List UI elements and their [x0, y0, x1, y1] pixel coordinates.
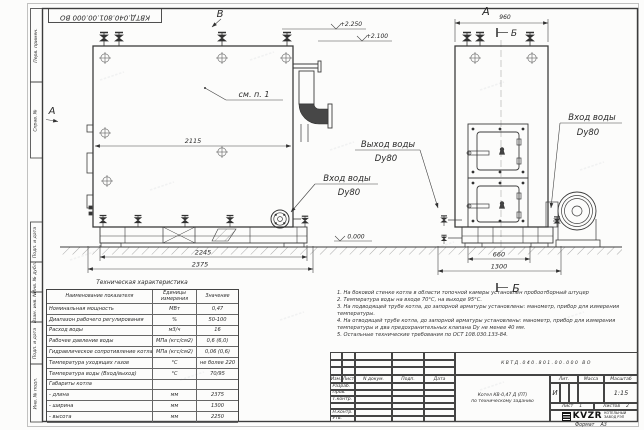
tb-row-utv: Утв. — [330, 416, 355, 423]
dim-2245-label: 2245 — [195, 249, 212, 257]
tb-company-cell: KVZR КОТЕЛЬНЫЙ ЗАВОД РЭП — [550, 410, 638, 422]
dim-2115-label: 2115 — [185, 137, 202, 145]
tb-designation: КВТД.040.801.00.000 ВО — [455, 352, 638, 375]
spec-table: Наименование показателя Единицы измерени… — [46, 289, 239, 422]
format-label: Формат — [575, 423, 594, 428]
inlet-side-label-line1: Вход воды — [568, 113, 616, 123]
dim-2375-label: 2375 — [192, 261, 209, 269]
technical-notes: 1. На боковой стенке котла в области топ… — [337, 290, 637, 339]
top-stamp-text: КВТД.040.801.00.000 ВО — [60, 14, 150, 22]
spec-row-unit — [153, 380, 197, 391]
spec-row-value: 0,47 — [197, 304, 238, 315]
format-value: А3 — [600, 423, 606, 428]
margin-box-perv-primen: Перв. примен. — [30, 8, 42, 82]
spec-row-value: 50-100 — [197, 315, 238, 326]
spec-row-unit: МПа (кгс/см2) — [153, 336, 197, 347]
top-valves-front — [100, 33, 291, 47]
spec-row-unit: °С — [153, 358, 197, 369]
note-3: 3. На подводящей трубе котла, до запорно… — [337, 304, 637, 317]
spec-row-value — [197, 380, 238, 391]
outlet-label-line2: Dy80 — [375, 154, 397, 164]
title-block: Изм. Лист N докум. Подп. Дата Разраб. Пр… — [330, 352, 638, 422]
spec-row-value: 70/95 — [197, 369, 238, 380]
spec-row-name: Гидравлическое сопротивление котла — [47, 347, 153, 358]
side-wall-fittings — [87, 125, 93, 215]
tb-col-ndokum: N докум. — [355, 375, 392, 383]
margin-box-inv-podl: Инв. № подл. — [30, 364, 42, 422]
spec-row-value: 1300 — [197, 401, 238, 412]
gas-outlet-elbow — [293, 61, 332, 142]
callout-see-p1: см. п. 1 — [239, 90, 270, 99]
spec-row-name: Номинальная мощность — [47, 304, 153, 315]
section-b-top-label: Б — [511, 29, 517, 39]
kvzr-logo-icon — [562, 412, 571, 421]
spec-row-name: Диапазон рабочего регулирования — [47, 315, 153, 326]
dim-960-label: 960 — [499, 14, 511, 21]
note-1: 1. На боковой стенке котла в области топ… — [337, 290, 637, 297]
top-valves-side — [463, 33, 534, 47]
spec-header-value: Значение — [197, 290, 238, 304]
margin-box-sprav-n: Справ. № — [30, 82, 42, 158]
spec-row-unit: м3/ч — [153, 326, 197, 337]
spec-row-unit: мм — [153, 412, 197, 423]
margin-box-podp-data-1: Подп. и дата — [30, 222, 42, 262]
tb-mass-value — [578, 383, 604, 403]
skid-base-side — [462, 227, 553, 247]
tb-scale-value: 1:15 — [604, 383, 638, 403]
spec-row-name: - высота — [47, 412, 153, 423]
tb-col-data: Дата — [424, 375, 455, 383]
spec-header-name: Наименование показателя — [47, 290, 153, 304]
spec-header-unit: Единицы измерения — [153, 290, 197, 304]
margin-box-inv-dubl: Инв. № дубл. — [30, 262, 42, 292]
spec-row-name: - ширина — [47, 401, 153, 412]
spec-row-unit: мм — [153, 401, 197, 412]
view-label-b: В — [217, 9, 224, 20]
water-inlet-flange — [271, 210, 289, 228]
spec-row-name: Температура уходящих газов — [47, 358, 153, 369]
margin-box-vzam-inv: Взам. инв. № — [30, 292, 42, 322]
blower-fan — [546, 192, 600, 247]
spec-row-unit: МВт — [153, 304, 197, 315]
format-note: Формат А3 — [575, 423, 607, 428]
boiler-body-side — [455, 46, 548, 227]
spec-row-name: Температура воды (Вход/выход) — [47, 369, 153, 380]
drawing-sheet: КВТД.040.801.00.000 ВО — [0, 0, 644, 430]
bottom-valves-front — [100, 216, 309, 227]
note-5: 5. Остальные технические требования по О… — [337, 332, 637, 339]
spec-row-unit: % — [153, 315, 197, 326]
inlet-side-label-line2: Dy80 — [577, 128, 599, 138]
tb-doc-name-line2: по техническому заданию — [471, 399, 534, 405]
side-view-label-a: А — [481, 5, 490, 18]
tb-col-izm: Изм. — [330, 375, 342, 383]
spec-row-name: - длина — [47, 390, 153, 401]
spec-row-unit: мм — [153, 390, 197, 401]
side-view — [441, 33, 600, 253]
tb-sheets-cell: Листов2 — [594, 403, 638, 410]
spec-row-name: Расход воды — [47, 326, 153, 337]
dim-1300-label: 1300 — [491, 263, 508, 271]
spec-row-value: не более 220 — [197, 358, 238, 369]
outlet-label-line1: Выход воды — [361, 140, 415, 150]
note-4: 4. На отводящей трубе котла, до запорной… — [337, 318, 637, 331]
ground-line — [60, 247, 622, 255]
tb-lit-value: И — [550, 383, 560, 403]
elev-2250-label: +2.250 — [340, 21, 362, 28]
note-2: 2. Температура воды на входе 70°С, на вы… — [337, 297, 637, 304]
spec-row-name: Рабочее давление воды — [47, 336, 153, 347]
view-label-a-left: А — [48, 106, 56, 117]
skid-base-front — [100, 227, 307, 247]
dim-660-label: 660 — [493, 251, 505, 259]
tb-col-list: Лист — [342, 375, 355, 383]
upper-door — [467, 124, 528, 178]
elev-zero-label: 0.000 — [347, 234, 364, 241]
tb-mass-header: Масса — [578, 375, 604, 383]
inlet-front-label-line1: Вход воды — [323, 174, 371, 184]
elev-2100-label: +2.100 — [366, 33, 388, 40]
company-name: КОТЕЛЬНЫЙ ЗАВОД РЭП — [604, 412, 626, 420]
tb-doc-name: Котел КВ-0,47 Д (ПТ) по техническому зад… — [455, 375, 550, 422]
kvzr-logo-text: KVZR — [573, 411, 602, 421]
spec-row-value: 2375 — [197, 390, 238, 401]
spec-row-name: Габариты котла — [47, 380, 153, 391]
spec-row-unit: МПа (кгс/см2) — [153, 347, 197, 358]
spec-row-unit: °С — [153, 369, 197, 380]
inlet-front-label-line2: Dy80 — [338, 188, 360, 198]
spec-table-title: Техническая характеристика — [46, 280, 238, 286]
spec-row-value: 0,6 (6,0) — [197, 336, 238, 347]
tb-col-podp: Подп. — [392, 375, 424, 383]
spec-row-value: 2250 — [197, 412, 238, 423]
front-view — [87, 33, 332, 248]
lower-door — [467, 178, 528, 227]
spec-row-value: 16 — [197, 326, 238, 337]
tb-lit-header: Лит. — [550, 375, 578, 383]
spec-row-value: 0,06 (0,6) — [197, 347, 238, 358]
tb-sheet-cell: Лист1 — [550, 403, 594, 410]
tb-scale-header: Масштаб — [604, 375, 638, 383]
margin-box-podp-data-2: Подп. и дата — [30, 322, 42, 364]
